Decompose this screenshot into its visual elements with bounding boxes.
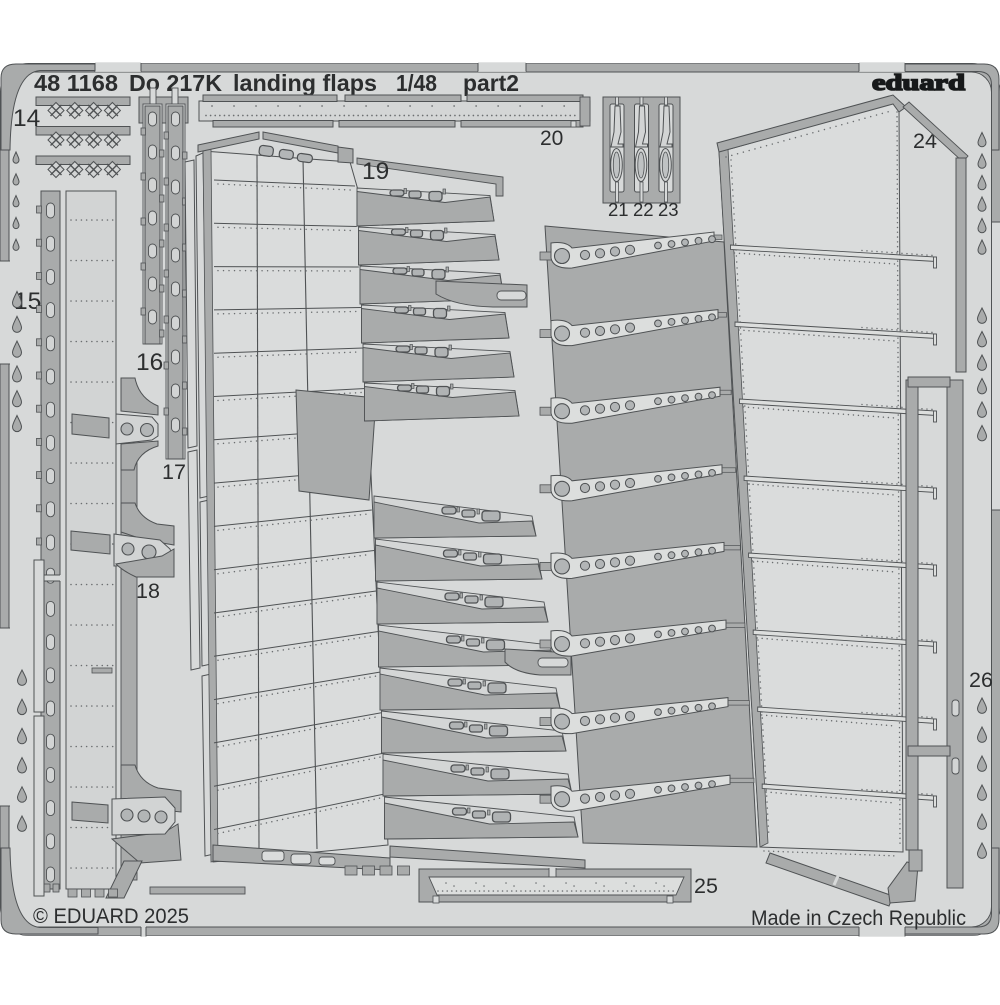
svg-text:26: 26 (969, 668, 993, 692)
svg-text:18: 18 (136, 579, 160, 603)
svg-text:48 1168: 48 1168 (34, 70, 118, 96)
svg-text:20: 20 (540, 127, 563, 150)
svg-text:16: 16 (136, 349, 163, 376)
svg-text:22: 22 (633, 199, 654, 220)
svg-text:23: 23 (658, 199, 679, 220)
svg-text:19: 19 (362, 158, 389, 185)
svg-text:part2: part2 (463, 70, 519, 96)
svg-text:1/48: 1/48 (396, 70, 437, 96)
svg-text:21: 21 (608, 199, 629, 220)
svg-text:© EDUARD 2025: © EDUARD 2025 (33, 905, 189, 928)
svg-text:Made in Czech Republic: Made in Czech Republic (751, 907, 966, 930)
svg-text:eduard: eduard (872, 70, 965, 96)
svg-text:landing flaps: landing flaps (233, 70, 377, 96)
svg-text:17: 17 (162, 460, 186, 484)
svg-text:25: 25 (694, 874, 718, 898)
svg-text:14: 14 (13, 105, 40, 132)
